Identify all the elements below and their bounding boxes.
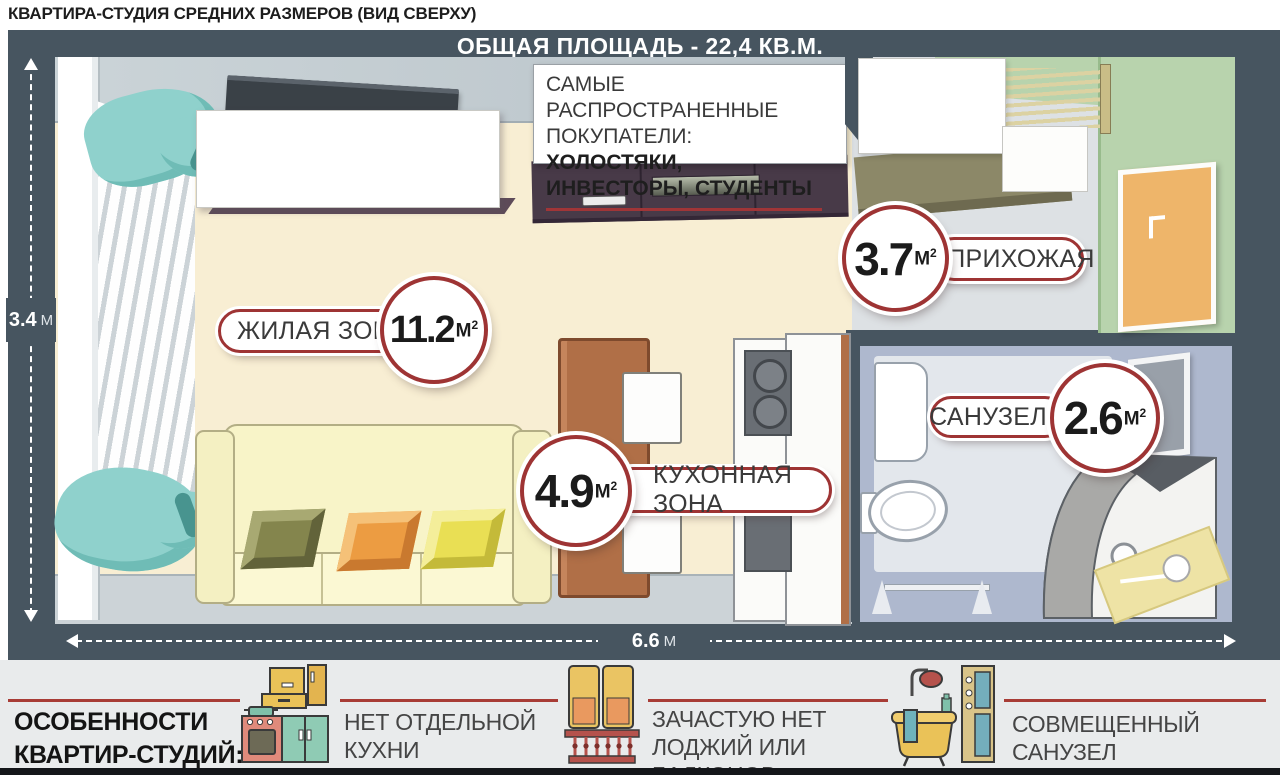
chair [622,372,682,444]
sofa-armrest [195,430,235,604]
bathroom-sink [874,362,928,462]
sofa [195,424,549,604]
studio-apartment-infographic: КВАРТИРА-СТУДИЯ СРЕДНИХ РАЗМЕРОВ (ВИД СВ… [0,0,1280,775]
oven [744,510,792,572]
bathroom-label: САНУЗЕЛ [930,396,1066,438]
feature-label-combined-bathroom: СОВМЕЩЕННЫЙ САНУЗЕЛ [1012,710,1202,766]
hallway-unit: М2 [914,246,937,270]
pillow-yellow [420,509,505,569]
divider-line [340,699,558,702]
bathroom-area: 2.6 [1064,391,1122,445]
kitchen-zone-unit: М2 [595,479,618,503]
bathroom-unit: М2 [1124,406,1147,430]
balcony-icon [563,664,641,768]
kitchen-zone-area-badge: 4.9 М2 [520,435,632,547]
buyers-note-box: САМЫЕ РАСПРОСТРАНЕННЫЕ ПОКУПАТЕЛИ: ХОЛОС… [533,64,847,164]
divider-line [1004,699,1266,702]
pillow-olive [240,509,325,569]
width-dimension-label: 6.6 М [598,627,710,655]
living-zone-unit: М2 [456,318,479,342]
feature-label-no-kitchen: НЕТ ОТДЕЛЬНОЙ КУХНИ [344,708,539,764]
kitchen-zone-label: КУХОННАЯ ЗОНА [610,467,832,513]
shower-hose [1120,574,1168,584]
buyers-note-line3: ИНВЕСТОРЫ, СТУДЕНТЫ [546,176,834,202]
cooktop [744,350,792,436]
door-handle [1149,215,1165,238]
living-zone-area-badge: 11.2 М2 [380,276,488,384]
divider-line [648,699,888,702]
hallway-appliance-large [858,58,1006,154]
shower-head [1158,550,1194,586]
feature-label-no-balcony: ЗАЧАСТУЮ НЕТ ЛОДЖИЙ ИЛИ БАЛКОНОВ [652,705,897,775]
height-dimension-label: 3.4 М [6,298,56,342]
arrow-down-icon [24,610,38,622]
towel-rail [884,584,990,591]
burner [753,395,787,429]
arrow-up-icon [24,58,38,70]
divider-line [8,699,240,702]
buyers-note-line2: ПОКУПАТЕЛИ: ХОЛОСТЯКИ, [546,124,834,176]
hallway-text: ПРИХОЖАЯ [947,245,1095,274]
hallway-area-badge: 3.7 М2 [842,205,949,312]
hallway-label: ПРИХОЖАЯ [932,237,1084,281]
kitchen-icon [240,664,338,766]
bathtub-icon [890,662,998,768]
buyers-note-line1: САМЫЕ РАСПРОСТРАНЕННЫЕ [546,72,834,124]
red-underline [546,208,822,211]
coat-rack-bar [1100,64,1111,134]
coat-rack-slats [1002,68,1110,128]
features-title: ОСОБЕННОСТИ КВАРТИР-СТУДИЙ: [14,706,243,772]
burner [753,359,787,393]
pillow-orange [336,511,421,571]
page-title: КВАРТИРА-СТУДИЯ СРЕДНИХ РАЗМЕРОВ (ВИД СВ… [8,4,476,24]
hallway-appliance-small [1002,126,1088,192]
bathroom-text: САНУЗЕЛ [929,403,1047,432]
total-area-header: ОБЩАЯ ПЛОЩАДЬ - 22,4 КВ.М. [0,33,1280,60]
bathroom-area-badge: 2.6 М2 [1050,363,1160,473]
arrow-right-icon [1224,634,1236,648]
arrow-left-icon [66,634,78,648]
bottom-bar [0,768,1280,775]
living-zone-area: 11.2 [390,309,454,352]
wall-cabinet [196,110,500,208]
kitchen-zone-text: КУХОННАЯ ЗОНА [653,461,829,519]
kitchen-zone-area: 4.9 [535,464,593,518]
hallway-area: 3.7 [854,232,912,286]
entrance-door [1118,162,1216,333]
